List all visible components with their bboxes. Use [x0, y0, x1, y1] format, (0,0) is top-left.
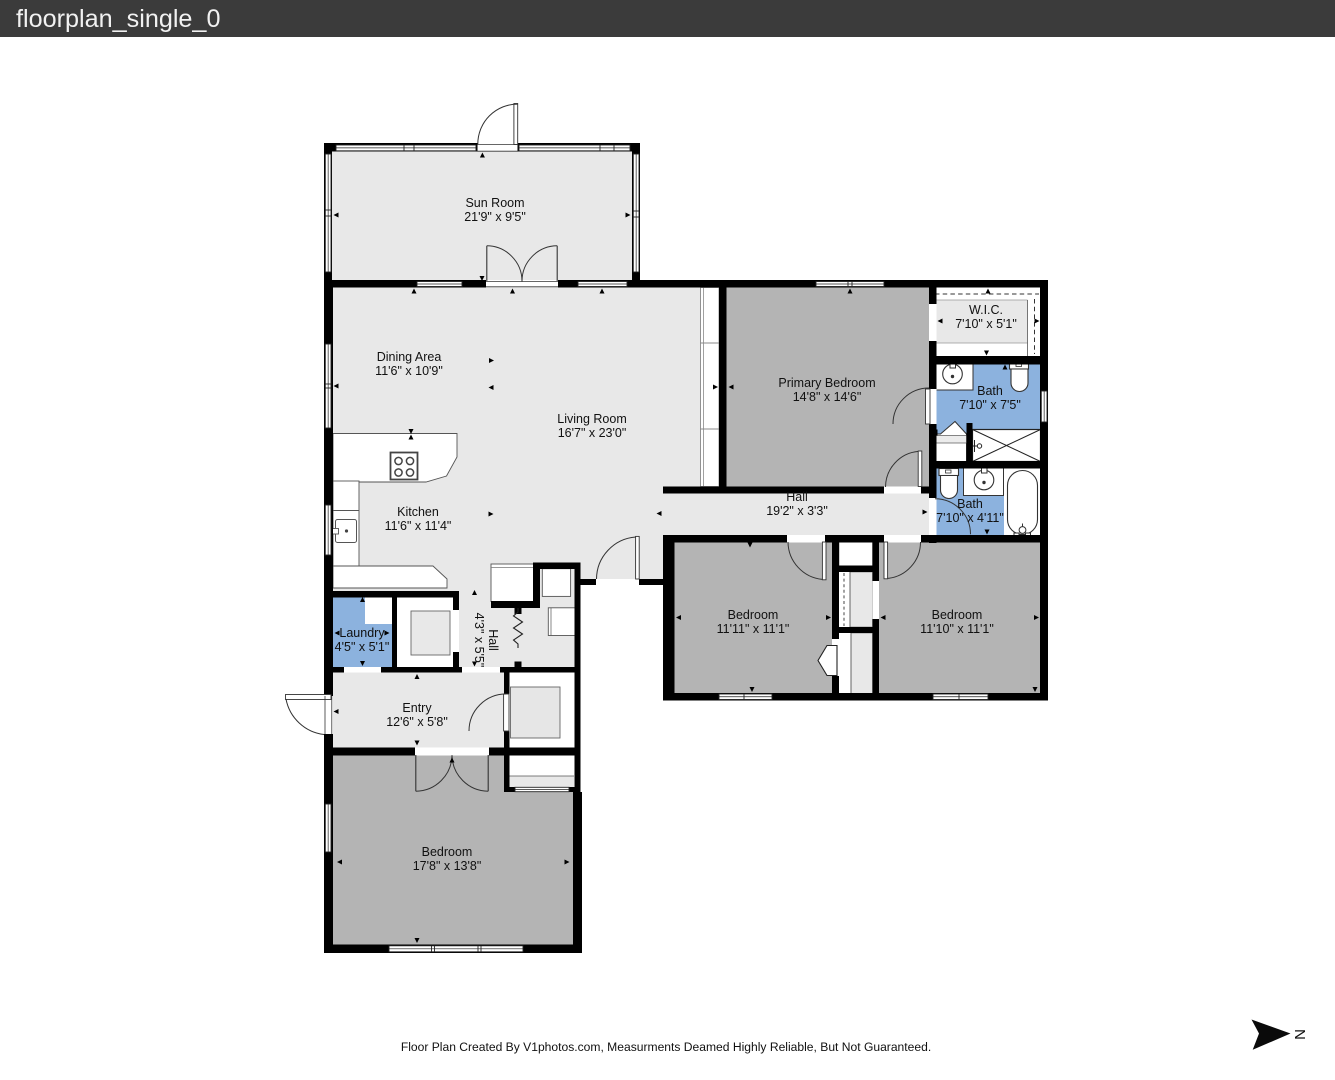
svg-text:14'8" x 14'6": 14'8" x 14'6"	[793, 390, 862, 404]
svg-text:Sun Room: Sun Room	[465, 196, 524, 210]
svg-text:Entry: Entry	[402, 701, 432, 715]
svg-text:11'10" x 11'1": 11'10" x 11'1"	[920, 622, 994, 636]
svg-text:11'6" x 10'9": 11'6" x 10'9"	[375, 364, 443, 378]
svg-text:Bedroom: Bedroom	[932, 608, 983, 622]
svg-text:Primary Bedroom: Primary Bedroom	[778, 376, 875, 390]
svg-text:Hall: Hall	[786, 490, 808, 504]
svg-text:7'10" x 7'5": 7'10" x 7'5"	[959, 398, 1021, 412]
svg-text:Bedroom: Bedroom	[422, 845, 473, 859]
svg-text:N: N	[1291, 1029, 1308, 1040]
svg-text:11'6" x 11'4": 11'6" x 11'4"	[385, 519, 452, 533]
svg-text:7'10" x 4'11": 7'10" x 4'11"	[936, 511, 1004, 525]
svg-text:21'9" x 9'5": 21'9" x 9'5"	[464, 210, 526, 224]
svg-text:Dining Area: Dining Area	[377, 350, 442, 364]
svg-text:W.I.C.: W.I.C.	[969, 303, 1003, 317]
svg-text:12'6" x 5'8": 12'6" x 5'8"	[386, 715, 448, 729]
svg-text:Laundry: Laundry	[339, 626, 385, 640]
svg-text:floorplan_single_0: floorplan_single_0	[16, 5, 220, 33]
svg-text:19'2" x 3'3": 19'2" x 3'3"	[766, 504, 828, 518]
svg-text:Bath: Bath	[977, 384, 1003, 398]
svg-text:7'10" x 5'1": 7'10" x 5'1"	[955, 317, 1017, 331]
svg-text:4'5" x 5'1": 4'5" x 5'1"	[335, 640, 390, 654]
svg-text:16'7" x 23'0": 16'7" x 23'0"	[558, 426, 627, 440]
svg-text:Living Room: Living Room	[557, 412, 626, 426]
svg-text:11'11" x 11'1": 11'11" x 11'1"	[717, 622, 790, 636]
svg-text:Bedroom: Bedroom	[728, 608, 779, 622]
svg-text:Floor Plan Created By V1photos: Floor Plan Created By V1photos.com, Meas…	[401, 1040, 931, 1054]
svg-text:Kitchen: Kitchen	[397, 505, 439, 519]
svg-text:4'3" x 5'5": 4'3" x 5'5"	[472, 613, 486, 668]
svg-text:Hall: Hall	[486, 629, 500, 651]
svg-text:Bath: Bath	[957, 497, 983, 511]
svg-text:17'8" x 13'8": 17'8" x 13'8"	[413, 859, 482, 873]
